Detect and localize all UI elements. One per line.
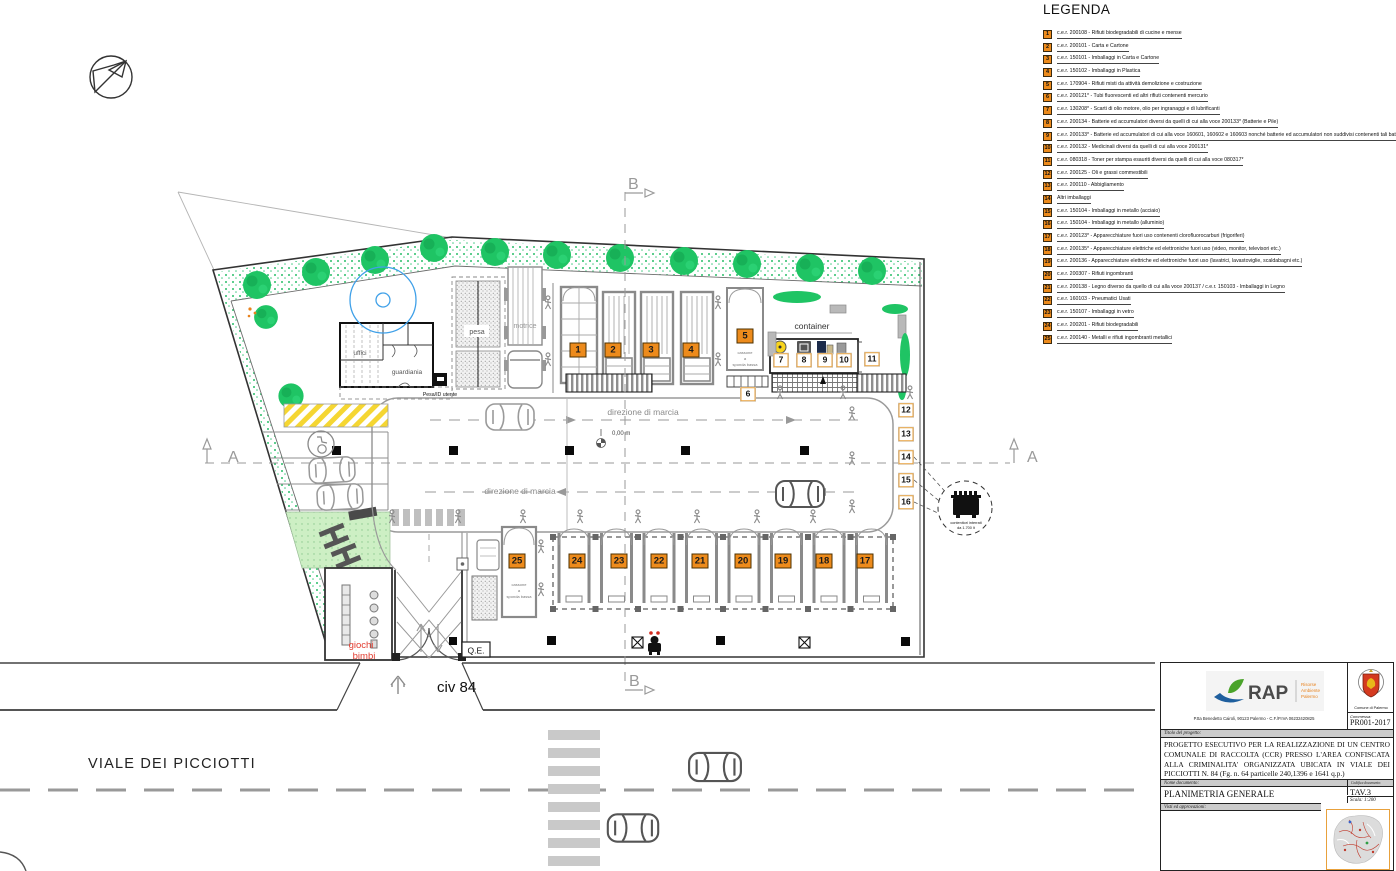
section-a-left-label: A <box>228 449 239 466</box>
uffici-label: uffici <box>353 350 366 357</box>
legend-item-text: c.e.r. 150102 - Imballaggi in Plastica <box>1057 68 1140 77</box>
legend-item-number: 19 <box>1043 258 1052 267</box>
legend-item-text: c.e.r. 130208* - Scarti di olio motore, … <box>1057 106 1220 115</box>
interrati-label-1: contenitori interrati <box>950 521 981 525</box>
codifica-value: TAV.3 <box>1347 787 1393 795</box>
legend-item-text: c.e.r. 200201 - Rifiuti biodegradabili <box>1057 322 1138 331</box>
legend-item-16: 16c.e.r. 150104 - Imballaggi in metallo … <box>1043 220 1395 233</box>
legend-item-8: 8c.e.r. 200134 - Batterie ed accumulator… <box>1043 119 1395 132</box>
section-b-top-label: B <box>628 176 639 193</box>
legend-item-number: 4 <box>1043 68 1052 77</box>
legend-item-number: 20 <box>1043 271 1052 280</box>
legend-item-number: 25 <box>1043 335 1052 344</box>
legend-item-18: 18c.e.r. 200135* - Apparecchiature elett… <box>1043 246 1395 259</box>
rap-text: RAP <box>1248 683 1288 704</box>
stall-marker-22: 22 <box>651 554 668 569</box>
titolo-text: PROGETTO ESECUTIVO PER LA REALIZZAZIONE … <box>1161 738 1393 779</box>
legend-item-9: 9c.e.r. 200133* - Batterie ed accumulato… <box>1043 132 1395 145</box>
legend-item-text: c.e.r. 200101 - Carta e Cartone <box>1057 43 1129 52</box>
stall-marker-16: 16 <box>899 495 914 509</box>
underground-containers-detail: contenitori interrati da 1.700 lt <box>914 457 992 535</box>
stall-marker-23: 23 <box>611 554 628 569</box>
stall-marker-9: 9 <box>818 353 833 367</box>
cassone5-l1: cassone <box>738 350 754 355</box>
stall-marker-10: 10 <box>837 353 852 367</box>
scala-value: Scala: 1:200 <box>1347 796 1393 803</box>
legend-item-number: 1 <box>1043 30 1052 39</box>
rap-logo-cell: RAP Risorse Ambiente Palermo P.tta Bened… <box>1161 663 1347 729</box>
legend-item-25: 25c.e.r. 200140 - Metalli e rifiuti ingo… <box>1043 335 1395 348</box>
legend-item-number: 11 <box>1043 157 1052 166</box>
stall-marker-21: 21 <box>692 554 709 569</box>
legend-item-10: 10c.e.r. 200132 - Medicinali diversi da … <box>1043 144 1395 157</box>
legend-item-text: c.e.r. 200136 - Apparecchiature elettric… <box>1057 258 1302 267</box>
legend-item-5: 5c.e.r. 170904 - Rifiuti misti da attivi… <box>1043 81 1395 94</box>
legend-item-text: Altri imballaggi <box>1057 195 1091 204</box>
legend-item-22: 22c.e.r. 160103 - Pneumatici Usati <box>1043 296 1395 309</box>
legend-item-1: 1c.e.r. 200108 - Rifiuti biodegradabili … <box>1043 30 1395 43</box>
legend-item-21: 21c.e.r. 200138 - Legno diverso da quell… <box>1043 284 1395 297</box>
direzione-bottom-label: direzione di marcia <box>484 486 556 496</box>
legend-item-number: 2 <box>1043 43 1052 52</box>
qe-label: Q.E. <box>467 646 484 656</box>
rap-logo: RAP Risorse Ambiente Palermo <box>1206 671 1324 711</box>
giochi-label-2: bimbi <box>353 651 376 662</box>
palermo-map <box>1326 809 1390 870</box>
stall-marker-7: 7 <box>774 353 789 367</box>
legend-item-text: c.e.r. 200135* - Apparecchiature elettri… <box>1057 246 1281 255</box>
legend-item-number: 13 <box>1043 182 1052 191</box>
legend-item-number: 7 <box>1043 106 1052 115</box>
legend-item-text: c.e.r. 200307 - Rifiuti ingombranti <box>1057 271 1133 280</box>
legend-item-number: 22 <box>1043 296 1052 305</box>
legend-item-text: c.e.r. 080318 - Toner per stampa esaurit… <box>1057 157 1243 166</box>
codifica-bar: Codifica documento: <box>1347 779 1393 787</box>
legend-title: LEGENDA <box>1043 2 1395 17</box>
legend-item-text: c.e.r. 200108 - Rifiuti biodegradabili d… <box>1057 30 1182 39</box>
legend-item-text: c.e.r. 200123* - Apparecchiature fuori u… <box>1057 233 1244 242</box>
walkways <box>566 374 906 392</box>
section-a-right-label: A <box>1027 449 1038 466</box>
legend-item-text: c.e.r. 200140 - Metalli e rifiuti ingomb… <box>1057 335 1172 344</box>
legend-item-text: c.e.r. 200138 - Legno diverso da quello … <box>1057 284 1285 293</box>
cassone25-l3: sponda bassa <box>507 594 533 599</box>
palermo-map-icon <box>1327 810 1388 868</box>
cassone25-l1: cassone <box>512 582 528 587</box>
legend-item-text: c.e.r. 200125 - Oli e grassi commestibil… <box>1057 170 1148 179</box>
pesa-id-label: Pesa/ID utente <box>423 392 457 398</box>
nome-bar: Nome documento: <box>1161 779 1347 787</box>
legend-item-text: c.e.r. 150104 - Imballaggi in metallo (a… <box>1057 208 1160 217</box>
legend-item-11: 11c.e.r. 080318 - Toner per stampa esaur… <box>1043 157 1395 170</box>
stall-marker-11: 11 <box>865 352 880 366</box>
dumpster-icon <box>951 491 981 518</box>
cassone5-l3: sponda bassa <box>733 362 759 367</box>
street-name-label: VIALE DEI PICCIOTTI <box>88 756 256 772</box>
title-block: RAP Risorse Ambiente Palermo P.tta Bened… <box>1160 662 1394 871</box>
legend-item-number: 8 <box>1043 119 1052 128</box>
nome-value: PLANIMETRIA GENERALE <box>1161 787 1347 800</box>
stall-marker-4: 4 <box>683 343 700 358</box>
legend-item-number: 12 <box>1043 170 1052 179</box>
legend-item-4: 4c.e.r. 150102 - Imballaggi in Plastica <box>1043 68 1395 81</box>
quota-label: 0,00 m <box>612 431 630 437</box>
comune-cell: Comune di Palermo Commessa: PR001-2017 <box>1347 663 1393 729</box>
legend-item-6: 6c.e.r. 200121* - Tubi fluorescenti ed a… <box>1043 93 1395 106</box>
legend-item-number: 14 <box>1043 195 1052 204</box>
guardhouse: totem Pesa/ID utente uffici guardiania <box>340 323 468 399</box>
electrical-panel: Q.E. <box>449 637 490 657</box>
section-b-bottom-label: B <box>629 673 640 690</box>
stall-marker-20: 20 <box>735 554 752 569</box>
street: civ 84 VIALE DEI PICCIOTTI <box>0 663 1155 871</box>
playground: giochi bimbi <box>325 568 392 662</box>
legend-item-number: 15 <box>1043 208 1052 217</box>
stall-marker-3: 3 <box>643 343 660 358</box>
palermo-crest-icon <box>1358 666 1384 704</box>
legend-item-text: c.e.r. 200134 - Batterie ed accumulatori… <box>1057 119 1278 128</box>
legend-item-3: 3c.e.r. 150101 - Imballaggi in Carta e C… <box>1043 55 1395 68</box>
rap-address: P.tta Benedetto Cairoli, 90123 Palermo -… <box>1165 716 1343 721</box>
legend-list: 1c.e.r. 200108 - Rifiuti biodegradabili … <box>1043 30 1395 347</box>
weighbridge: pesa <box>452 277 505 389</box>
rap-sub2: Ambiente <box>1301 688 1321 693</box>
picnic-area <box>286 507 390 569</box>
legend-item-text: c.e.r. 200121* - Tubi fluorescenti ed al… <box>1057 93 1208 102</box>
stall-marker-8: 8 <box>797 353 812 367</box>
legend-item-number: 10 <box>1043 144 1052 153</box>
stall-marker-15: 15 <box>899 473 914 487</box>
legend: LEGENDA 1c.e.r. 200108 - Rifiuti biodegr… <box>1043 2 1395 347</box>
legend-item-14: 14Altri imballaggi <box>1043 195 1395 208</box>
legend-item-20: 20c.e.r. 200307 - Rifiuti ingombranti <box>1043 271 1395 284</box>
legend-item-text: c.e.r. 200133* - Batterie ed accumulator… <box>1057 132 1396 141</box>
legend-item-15: 15c.e.r. 150104 - Imballaggi in metallo … <box>1043 208 1395 221</box>
legend-item-17: 17c.e.r. 200123* - Apparecchiature fuori… <box>1043 233 1395 246</box>
rap-sub1: Risorse <box>1301 682 1317 687</box>
legend-item-text: c.e.r. 150104 - Imballaggi in metallo (a… <box>1057 220 1164 229</box>
legend-item-text: c.e.r. 170904 - Rifiuti misti da attivit… <box>1057 81 1202 90</box>
motrice-label: motrice <box>514 323 537 330</box>
legend-item-text: c.e.r. 160103 - Pneumatici Usati <box>1057 296 1131 305</box>
legend-item-number: 9 <box>1043 132 1052 141</box>
stall-marker-17: 17 <box>857 554 874 569</box>
rap-logo-icon: RAP Risorse Ambiente Palermo <box>1206 671 1324 711</box>
stall-marker-19: 19 <box>775 554 792 569</box>
drawing-sheet: totem Pesa/ID utente uffici guardiania p… <box>0 0 1396 871</box>
legend-item-number: 5 <box>1043 81 1052 90</box>
legend-item-7: 7c.e.r. 130208* - Scarti di olio motore,… <box>1043 106 1395 119</box>
internal-crosswalk <box>392 509 465 526</box>
rap-sub3: Palermo <box>1301 694 1318 699</box>
guardiania-label: guardiania <box>392 369 423 376</box>
legend-item-number: 24 <box>1043 322 1052 331</box>
site-furniture <box>547 631 910 655</box>
legend-item-text: c.e.r. 200110 - Abbigliamento <box>1057 182 1124 191</box>
person-with-bin-icon <box>648 631 661 655</box>
legend-item-number: 16 <box>1043 220 1052 229</box>
container-label: container <box>795 321 830 331</box>
legend-item-number: 3 <box>1043 55 1052 64</box>
stall-marker-1: 1 <box>570 343 587 358</box>
civ-label: civ 84 <box>437 679 476 696</box>
bottom-stalls: cassone a sponda bassa <box>457 527 896 655</box>
stall-marker-13: 13 <box>899 427 914 441</box>
stall-marker-25: 25 <box>509 554 526 569</box>
titolo-bar: Titolo del progetto: <box>1161 729 1393 738</box>
legend-item-number: 23 <box>1043 309 1052 318</box>
stall-marker-6: 6 <box>741 387 756 401</box>
legend-item-2: 2c.e.r. 200101 - Carta e Cartone <box>1043 43 1395 56</box>
direzione-top-label: direzione di marcia <box>607 407 679 417</box>
truck: motrice <box>504 267 546 388</box>
legend-item-text: c.e.r. 150101 - Imballaggi in Carta e Ca… <box>1057 55 1159 64</box>
giochi-label-1: giochi <box>349 640 374 651</box>
stall-marker-5: 5 <box>737 329 754 344</box>
sidewalk-arrow-icon <box>391 676 405 694</box>
stall-marker-12: 12 <box>899 403 914 417</box>
north-arrow-icon <box>90 56 132 98</box>
legend-item-19: 19c.e.r. 200136 - Apparecchiature elettr… <box>1043 258 1395 271</box>
legend-item-number: 18 <box>1043 246 1052 255</box>
legend-item-number: 6 <box>1043 93 1052 102</box>
legend-item-24: 24c.e.r. 200201 - Rifiuti biodegradabili <box>1043 322 1395 335</box>
legend-item-number: 17 <box>1043 233 1052 242</box>
legend-item-text: c.e.r. 150107 - Imballaggi in vetro <box>1057 309 1134 318</box>
legend-item-number: 21 <box>1043 284 1052 293</box>
interrati-label-2: da 1.700 lt <box>957 526 976 530</box>
legend-item-12: 12c.e.r. 200125 - Oli e grassi commestib… <box>1043 170 1395 183</box>
legend-item-23: 23c.e.r. 150107 - Imballaggi in vetro <box>1043 309 1395 322</box>
comune-label: Comune di Palermo <box>1348 706 1394 710</box>
stall-marker-18: 18 <box>816 554 833 569</box>
stall-marker-14: 14 <box>899 450 914 464</box>
stall-marker-2: 2 <box>605 343 622 358</box>
commessa-value: PR001-2017 <box>1348 718 1394 727</box>
legend-item-text: c.e.r. 200132 - Medicinali diversi da qu… <box>1057 144 1208 153</box>
pesa-label: pesa <box>469 329 484 336</box>
stall-marker-24: 24 <box>569 554 586 569</box>
visti-bar: Visti ed approvazioni: <box>1161 803 1321 811</box>
legend-item-13: 13c.e.r. 200110 - Abbigliamento <box>1043 182 1395 195</box>
